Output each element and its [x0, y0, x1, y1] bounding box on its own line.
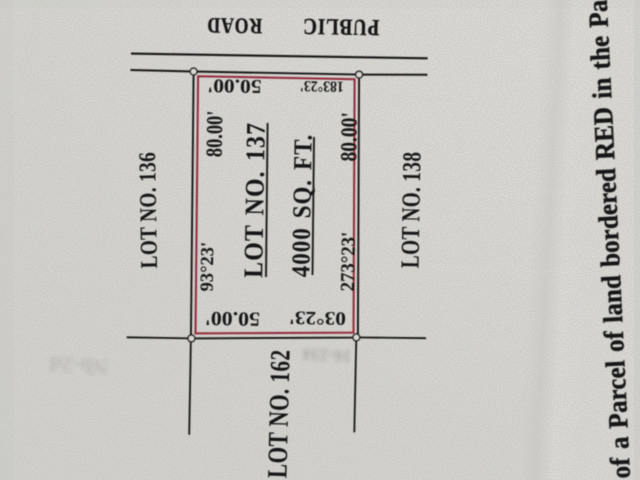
svg-text:183°23': 183°23' [300, 77, 344, 95]
svg-text:50.00': 50.00' [205, 307, 260, 331]
svg-text:ROAD: ROAD [206, 13, 262, 38]
svg-text:80.00': 80.00' [201, 110, 228, 157]
svg-text:LOT NO. 136: LOT NO. 136 [134, 152, 163, 269]
svg-text:PUBLIC: PUBLIC [302, 13, 380, 40]
svg-text:93°23': 93°23' [198, 242, 219, 292]
svg-text:LOT NO. 138: LOT NO. 138 [396, 151, 426, 268]
svg-text:LOT NO. 162: LOT NO. 162 [263, 349, 297, 478]
svg-text:Nb-2d: Nb-2d [49, 352, 109, 380]
svg-text:50.00': 50.00' [207, 75, 262, 97]
svg-text:03°23': 03°23' [289, 307, 346, 329]
svg-text:273°23': 273°23' [337, 232, 360, 292]
svg-text:80.00': 80.00' [336, 112, 363, 162]
svg-text:16-234: 16-234 [302, 345, 352, 367]
